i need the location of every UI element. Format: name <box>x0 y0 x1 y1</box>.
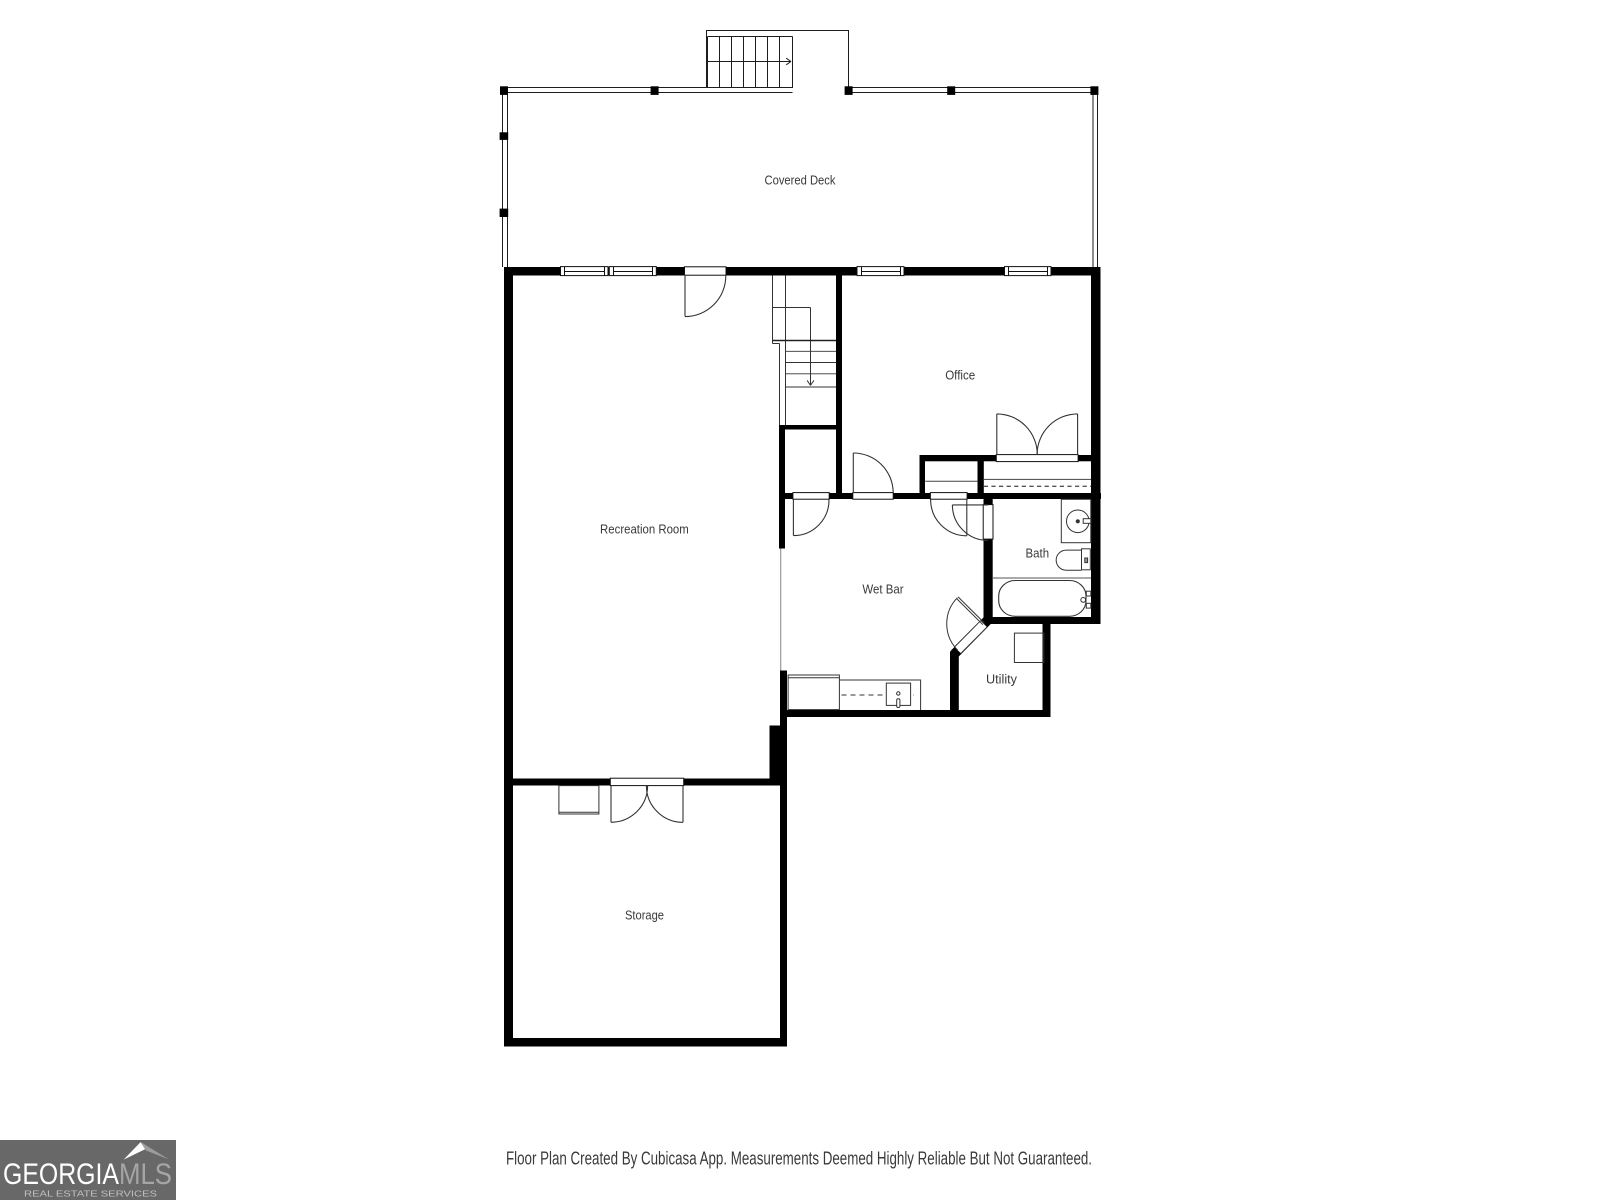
svg-text:Recreation Room: Recreation Room <box>600 522 689 537</box>
svg-text:Floor Plan Created By Cubicasa: Floor Plan Created By Cubicasa App. Meas… <box>506 1148 1092 1169</box>
svg-text:MLS: MLS <box>119 1158 172 1191</box>
svg-text:REAL ESTATE SERVICES: REAL ESTATE SERVICES <box>24 1190 157 1199</box>
svg-text:GEORGIA: GEORGIA <box>3 1158 119 1191</box>
svg-text:Office: Office <box>945 368 975 383</box>
svg-text:Covered Deck: Covered Deck <box>765 173 836 188</box>
svg-text:Bath: Bath <box>1026 545 1050 560</box>
svg-text:Wet Bar: Wet Bar <box>862 582 904 597</box>
svg-text:Utility: Utility <box>986 671 1017 686</box>
svg-text:Storage: Storage <box>625 908 664 923</box>
